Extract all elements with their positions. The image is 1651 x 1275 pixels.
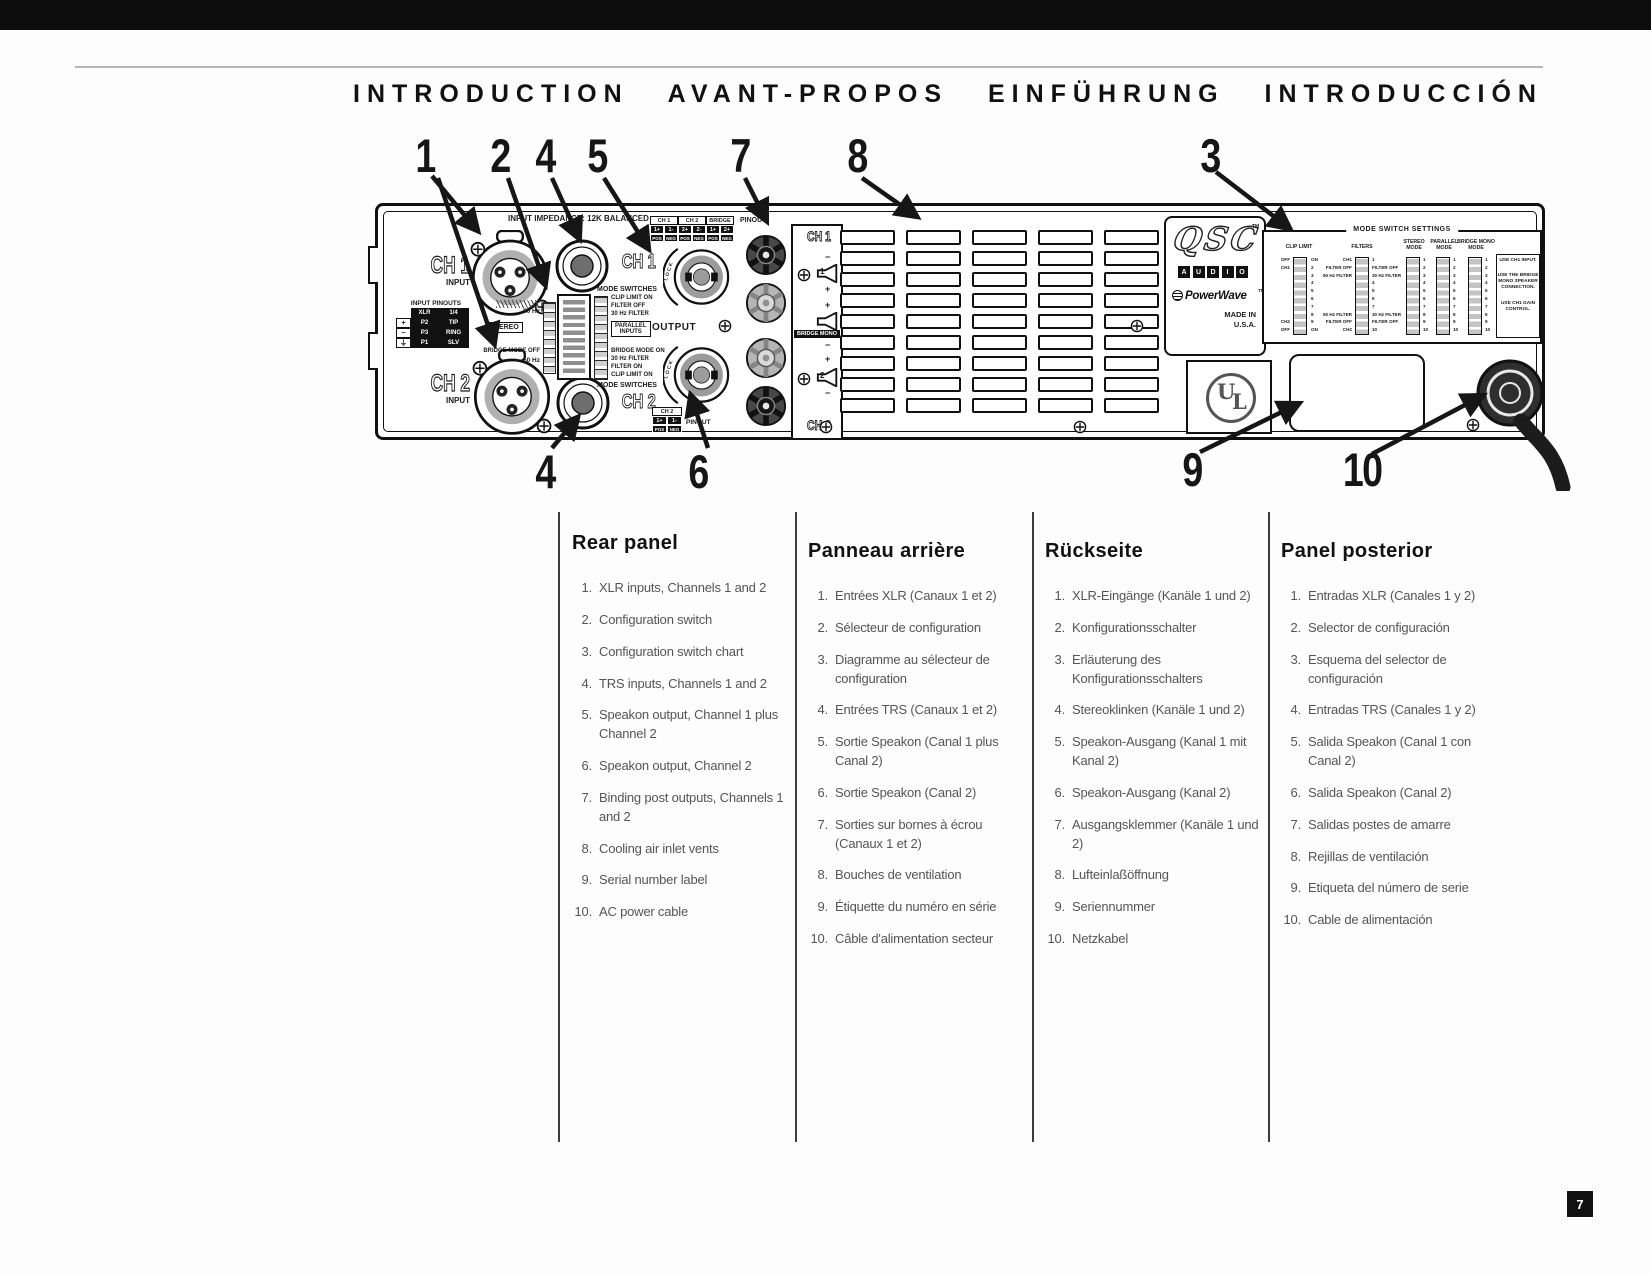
audio-letter: U xyxy=(1193,266,1205,278)
plus-sign: + xyxy=(825,300,830,310)
list-item: 9. Seriennummer xyxy=(1045,898,1259,917)
mode-switches-ch2: MODE SWITCHES xyxy=(596,382,658,389)
item-list: 1. Entradas XLR (Canales 1 y 2) 2. Selec… xyxy=(1281,587,1495,930)
list-item: 4. TRS inputs, Channels 1 and 2 xyxy=(572,675,786,694)
rack-ear-tab xyxy=(368,246,378,284)
dip-label-stereo: STEREO xyxy=(486,322,523,333)
page-number-badge: 7 xyxy=(1567,1191,1593,1217)
list-item: 8. Lufteinlaßöffnung xyxy=(1045,866,1259,885)
clip-right-labels: ON 2 3 4 5 6 7 8 9 ON xyxy=(1311,256,1318,334)
list-item: 9. Etiqueta del número de serie xyxy=(1281,879,1495,898)
manual-page: INTRODUCTION AVANT-PROPOS EINFÜHRUNG INT… xyxy=(0,0,1651,1275)
list-item: 2. Configuration switch xyxy=(572,611,786,630)
list-item: 8. Cooling air inlet vents xyxy=(572,840,786,859)
list-item: 2. Konfigurationsschalter xyxy=(1045,619,1259,638)
mode-switches-ch1: MODE SWITCHES xyxy=(596,286,658,293)
callout-2: 2 xyxy=(490,128,509,183)
posts-ch1-label: CH 1 xyxy=(807,229,831,243)
dip-label-bridge-off: BRIDGE MODE OFF xyxy=(476,348,540,354)
screw-icon xyxy=(819,420,833,434)
column-divider xyxy=(795,512,797,1142)
column-heading: Panneau arrière xyxy=(808,540,1022,563)
column-english: Rear panel 1. XLR inputs, Channels 1 and… xyxy=(572,532,786,935)
input-pinouts-table: XLR 1/4 + P2 TIP − P3 RING ⏚ P1 SLV xyxy=(396,308,476,348)
column-spanish: Panel posterior 1. Entradas XLR (Canales… xyxy=(1281,540,1495,943)
note-use-bridge: USE THE BRIDGE MONO SPEAKER CONNECTION. xyxy=(1497,273,1539,291)
callout-9: 9 xyxy=(1182,442,1201,497)
audio-letter: O xyxy=(1236,266,1248,278)
dip-label-30hz-1: 30 Hz FILTER xyxy=(611,311,649,317)
item-list: 1. Entrées XLR (Canaux 1 et 2) 2. Sélect… xyxy=(808,587,1022,949)
dip-mini-right xyxy=(594,296,608,380)
binding-post-3 xyxy=(745,337,787,379)
filters-switch-column xyxy=(1355,257,1369,335)
list-item: 10. Cable de alimentación xyxy=(1281,911,1495,930)
stereo-switch-column xyxy=(1406,257,1420,335)
screw-icon xyxy=(1073,420,1087,434)
callout-4-bottom: 4 xyxy=(535,444,554,499)
serial-number-label xyxy=(1289,354,1425,432)
column-heading: Rear panel xyxy=(572,532,786,555)
list-item: 7. Salidas postes de amarre xyxy=(1281,816,1495,835)
cooling-vents xyxy=(840,230,1159,413)
bridge-speaker-icon xyxy=(816,312,840,331)
list-item: 7. Ausgangsklemmer (Kanäle 1 und 2) xyxy=(1045,816,1259,854)
qsc-logo: QSC xyxy=(1171,220,1263,258)
dip-label-filter-off: FILTER OFF xyxy=(611,303,645,309)
list-item: 5. Sortie Speakon (Canal 1 plus Canal 2) xyxy=(808,733,1022,771)
list-item: 3. Esquema del selector de configuración xyxy=(1281,651,1495,689)
list-item: 4. Entradas TRS (Canales 1 y 2) xyxy=(1281,701,1495,720)
configuration-switch-chart: MODE SWITCH SETTINGS CLIP LIMIT OFF CH1 … xyxy=(1262,230,1542,344)
screw-icon xyxy=(1130,319,1144,333)
column-heading: Panel posterior xyxy=(1281,540,1495,563)
clip-limit-label: CLIP LIMIT xyxy=(1270,244,1328,250)
audio-letter: I xyxy=(1222,266,1234,278)
rear-panel-diagram: INPUT IMPEDANCE: 12K BALANCED CH 1 INPUT… xyxy=(375,203,1545,440)
list-item: 2. Sélecteur de configuration xyxy=(808,619,1022,638)
list-item: 3. Erläuterung des Konfigurationsschalte… xyxy=(1045,651,1259,689)
filters-left-labels: CH1 FILTER OFF 50 Hz FILTER 50 Hz FILTER… xyxy=(1320,256,1352,334)
rack-ear-tab xyxy=(368,332,378,370)
list-item: 9. Étiquette du numéro en série xyxy=(808,898,1022,917)
dip-label-50hz-bottom: 50 Hz xyxy=(496,357,540,364)
list-item: 6. Sortie Speakon (Canal 2) xyxy=(808,784,1022,803)
horizontal-rule xyxy=(75,66,1543,68)
parallel-numbers: 1 2 3 4 5 6 7 8 9 10 xyxy=(1453,256,1458,334)
list-item: 4. Entrées TRS (Canaux 1 et 2) xyxy=(808,701,1022,720)
dip-label-clip-on-1: CLIP LIMIT ON xyxy=(611,295,653,301)
filters-right-labels: 1 FILTER OFF 30 Hz FILTER 4 5 6 7 30 Hz … xyxy=(1372,256,1401,334)
callout-10: 10 xyxy=(1343,442,1382,497)
chart-usage-notes: USE CH1 INPUT. USE THE BRIDGE MONO SPEAK… xyxy=(1496,254,1540,338)
note-use-gain: USE CH1 GAIN CONTROL. xyxy=(1497,301,1539,313)
powerwave-logo: PowerWave xyxy=(1172,290,1247,302)
column-divider xyxy=(1032,512,1034,1142)
list-item: 5. Speakon-Ausgang (Kanal 1 mit Kanal 2) xyxy=(1045,733,1259,771)
binding-post-4 xyxy=(745,385,787,427)
configuration-switch xyxy=(557,294,591,380)
mode-ch2-big: CH 2 xyxy=(622,392,656,412)
audio-letter: D xyxy=(1207,266,1219,278)
dip-mini-left xyxy=(543,302,556,374)
ch2-pinout-table: CH 2 1+ 1- POS NEG xyxy=(652,407,682,433)
dip-label-clip-on-2: CLIP LIMIT ON xyxy=(611,372,653,378)
ch1-input-sub: INPUT xyxy=(392,278,470,287)
chart-title: MODE SWITCH SETTINGS xyxy=(1346,226,1458,233)
clip-switch-column xyxy=(1293,257,1307,335)
callout-5: 5 xyxy=(587,128,606,183)
trademark-symbol: TM xyxy=(1252,224,1259,230)
screw-icon xyxy=(718,319,732,333)
ch2-input-sub: INPUT xyxy=(392,396,470,405)
screw-icon xyxy=(797,372,811,386)
list-item: 1. Entradas XLR (Canales 1 y 2) xyxy=(1281,587,1495,606)
list-item: 3. Diagramme au sélecteur de configurati… xyxy=(808,651,1022,689)
input-pinouts: INPUT PINOUTS XLR 1/4 + P2 TIP − P3 RING… xyxy=(396,300,476,348)
list-item: 10. Câble d'alimentation secteur xyxy=(808,930,1022,949)
column-heading: Rückseite xyxy=(1045,540,1259,563)
ch2-label: CH 2 xyxy=(414,372,470,396)
list-item: 9. Serial number label xyxy=(572,871,786,890)
list-item: 1. XLR inputs, Channels 1 and 2 xyxy=(572,579,786,598)
column-divider xyxy=(558,512,560,1142)
binding-post-2 xyxy=(745,282,787,324)
list-item: 3. Configuration switch chart xyxy=(572,643,786,662)
bridge-switch-column xyxy=(1468,257,1482,335)
list-item: 8. Bouches de ventilation xyxy=(808,866,1022,885)
impedance-label: INPUT IMPEDANCE: 12K BALANCED xyxy=(508,214,649,223)
list-item: 1. Entrées XLR (Canaux 1 et 2) xyxy=(808,587,1022,606)
ul-listing-mark: U L xyxy=(1186,360,1272,434)
bridge-numbers: 1 2 3 4 5 6 7 8 9 10 xyxy=(1485,256,1490,334)
binding-post-1 xyxy=(745,234,787,276)
brand-logo-block: QSC TM AUDIO PowerWave TM MADE IN U.S.A. xyxy=(1164,216,1266,356)
ac-power-cable xyxy=(1473,341,1603,491)
parallel-switch-column xyxy=(1436,257,1450,335)
pinout-label-top: PINOUT xyxy=(740,217,766,224)
column-divider xyxy=(1268,512,1270,1142)
dip-label-parallel: PARALLEL INPUTS xyxy=(611,321,651,337)
audio-wordmark: AUDIO xyxy=(1178,266,1248,278)
speakon-output-ch2 xyxy=(663,338,737,412)
callout-8: 8 xyxy=(847,128,866,183)
hatch-icon xyxy=(496,300,540,308)
speaker-1-number: 1 xyxy=(820,267,824,276)
bridge-mono-mode-label: BRIDGE MONO MODE xyxy=(1456,239,1496,251)
speakon-output-ch1 xyxy=(663,240,737,314)
minus-sign: − xyxy=(825,252,830,262)
ul-circle: U L xyxy=(1206,373,1256,423)
callout-6: 6 xyxy=(688,444,707,499)
output-pinout-table: CH 1 CH 2 BRIDGE 1+ 1- 2+ 2- 1+ 2+ POS N… xyxy=(650,216,734,242)
list-item: 6. Speakon-Ausgang (Kanal 2) xyxy=(1045,784,1259,803)
pinout-label-bottom: PINOUT xyxy=(686,419,711,426)
ch1-input-label: CH 1 INPUT xyxy=(392,254,470,287)
list-item: 10. Netzkabel xyxy=(1045,930,1259,949)
output-label: OUTPUT xyxy=(652,322,696,333)
input-pinouts-title: INPUT PINOUTS xyxy=(396,300,476,307)
list-item: 7. Sorties sur bornes à écrou (Canaux 1 … xyxy=(808,816,1022,854)
column-german: Rückseite 1. XLR-Eingänge (Kanäle 1 und … xyxy=(1045,540,1259,962)
plus-sign: + xyxy=(825,354,830,364)
callout-7: 7 xyxy=(730,128,749,183)
list-item: 8. Rejillas de ventilación xyxy=(1281,848,1495,867)
powerwave-icon xyxy=(1172,290,1183,301)
list-item: 1. XLR-Eingänge (Kanäle 1 und 2) xyxy=(1045,587,1259,606)
speaker-2-number: 2 xyxy=(820,371,824,380)
dip-label-filter-on: FILTER ON xyxy=(611,364,642,370)
callout-3: 3 xyxy=(1200,128,1219,183)
stereo-numbers: 1 2 3 4 5 6 7 8 9 10 xyxy=(1423,256,1428,334)
filters-label: FILTERS xyxy=(1334,244,1390,250)
mode-ch1-big: CH 1 xyxy=(622,252,656,272)
list-item: 6. Salida Speakon (Canal 2) xyxy=(1281,784,1495,803)
item-list: 1. XLR-Eingänge (Kanäle 1 und 2) 2. Konf… xyxy=(1045,587,1259,949)
clip-left-labels: OFF CH1 CH2 OFF xyxy=(1264,256,1290,334)
list-item: 5. Salida Speakon (Canal 1 con Canal 2) xyxy=(1281,733,1495,771)
callout-4-top: 4 xyxy=(535,128,554,183)
list-item: 10. AC power cable xyxy=(572,903,786,922)
screw-icon xyxy=(797,268,811,282)
audio-letter: A xyxy=(1178,266,1190,278)
list-item: 5. Speakon output, Channel 1 plus Channe… xyxy=(572,706,786,744)
page-title: INTRODUCTION AVANT-PROPOS EINFÜHRUNG INT… xyxy=(0,80,1543,109)
dip-label-bridge-on: BRIDGE MODE ON xyxy=(611,348,665,354)
binding-post-panel: CH 1 − 1 + + BRIDGE MONO − + 2 − CH 2 xyxy=(791,224,843,440)
ch2-input-label: CH 2 INPUT xyxy=(392,372,470,405)
top-black-bar xyxy=(0,0,1651,30)
ch1-label: CH 1 xyxy=(414,254,470,278)
list-item: 2. Selector de configuración xyxy=(1281,619,1495,638)
dip-label-30hz-2: 30 Hz FILTER xyxy=(611,356,649,362)
minus-sign: − xyxy=(825,340,830,350)
callout-1: 1 xyxy=(415,128,434,183)
note-use-ch1-input: USE CH1 INPUT. xyxy=(1497,258,1539,264)
minus-sign: − xyxy=(825,388,830,398)
list-item: 7. Binding post outputs, Channels 1 and … xyxy=(572,789,786,827)
dip-label-50hz-top: 50 Hz xyxy=(496,308,540,315)
column-french: Panneau arrière 1. Entrées XLR (Canaux 1… xyxy=(808,540,1022,962)
list-item: 4. Stereoklinken (Kanäle 1 und 2) xyxy=(1045,701,1259,720)
bridge-mono-label: BRIDGE MONO xyxy=(794,330,840,338)
item-list: 1. XLR inputs, Channels 1 and 2 2. Confi… xyxy=(572,579,786,922)
made-in-usa: MADE IN U.S.A. xyxy=(1224,310,1256,330)
plus-sign: + xyxy=(825,284,830,294)
list-item: 6. Speakon output, Channel 2 xyxy=(572,757,786,776)
